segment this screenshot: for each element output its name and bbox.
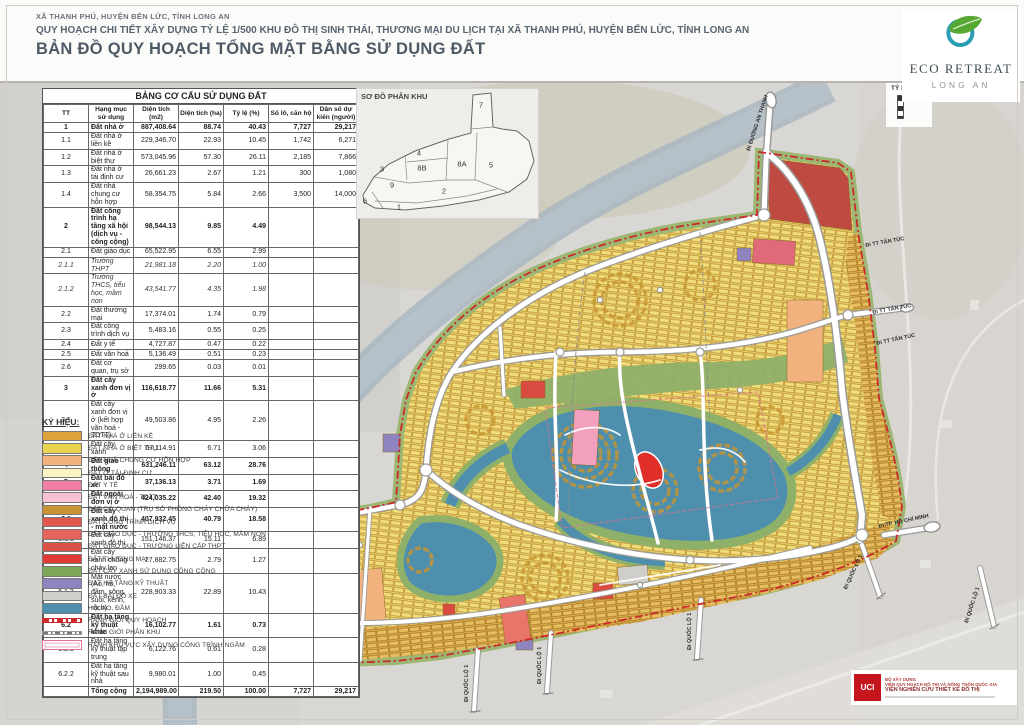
- eco-retreat-logo: ECO RETREAT LONG AN: [902, 10, 1020, 102]
- legend-swatch: [42, 542, 82, 553]
- table-row: 2.1.1Trường THPT21,981.182.201.00: [44, 257, 359, 274]
- publisher-text: BỘ XÂY DỰNG VIỆN QUY HOẠCH ĐÔ THỊ VÀ NÔN…: [885, 677, 997, 698]
- legend-label: ĐẤT THƯƠNG MẠI: [88, 556, 148, 563]
- table-cell: [314, 247, 359, 257]
- legend-item: ĐẤT THƯƠNG MẠI: [42, 553, 272, 565]
- legend-label: ĐẤT CÔNG TRÌNH DỊCH VỤ: [88, 519, 176, 526]
- subzone-number: 2: [442, 187, 446, 196]
- table-cell: Đất cơ quan, trụ sở: [89, 360, 134, 377]
- table-cell: [269, 532, 314, 549]
- service-block-4: [443, 604, 455, 615]
- logo-name: ECO RETREAT: [902, 61, 1020, 77]
- table-cell: 0.55: [179, 323, 224, 340]
- subzone-number: 1: [397, 203, 401, 212]
- table-cell: 9.85: [179, 207, 224, 247]
- legend-label: ĐẤT BÃI ĐỖ XE: [88, 593, 137, 600]
- legend-item: ĐẤT NHÀ Ở LIỀN KỀ: [42, 430, 272, 442]
- table-cell: Đất giáo dục: [89, 247, 134, 257]
- service-block-2: [521, 381, 545, 398]
- land-use-table-title: BẢNG CƠ CẤU SỬ DỤNG ĐẤT: [43, 89, 359, 104]
- legend-item: ĐẤT Y TẾ: [42, 479, 272, 491]
- legend-label: HỒ, AO, ĐẦM: [88, 605, 130, 612]
- legend-swatch: [42, 443, 82, 454]
- table-cell: 887,408.64: [134, 123, 179, 133]
- table-cell: 2.3: [44, 323, 89, 340]
- table-column-header: Tỷ lệ (%): [224, 105, 269, 123]
- culture-block: [572, 409, 600, 465]
- table-cell: 88.74: [179, 123, 224, 133]
- subzone-number: 4: [417, 149, 421, 158]
- table-cell: 29,217: [314, 687, 359, 697]
- table-cell: 2.2: [44, 306, 89, 323]
- table-cell: [269, 207, 314, 247]
- school-block: [752, 239, 796, 266]
- table-cell: 40.43: [224, 123, 269, 133]
- subzone-inset: SƠ ĐỒ PHÂN KHU 12345678A8B9: [356, 88, 539, 219]
- header-divider: [0, 81, 1024, 83]
- table-cell: 11.66: [179, 376, 224, 400]
- table-cell: 7,727: [269, 123, 314, 133]
- table-cell: [269, 257, 314, 274]
- table-cell: 3,500: [269, 183, 314, 207]
- legend-swatch: [42, 431, 82, 442]
- table-cell: 1.2: [44, 149, 89, 166]
- table-cell: 21,981.18: [134, 257, 179, 274]
- table-row: 2.2Đất thương mại17,374.011.740.79: [44, 306, 359, 323]
- table-cell: 4.49: [224, 207, 269, 247]
- mixed-apartment-block-east: [787, 300, 823, 382]
- table-cell: 5,483.16: [134, 323, 179, 340]
- legend-swatch-boundary: [42, 618, 82, 623]
- table-cell: 98,544.13: [134, 207, 179, 247]
- table-column-header: Dân số dự kiến (người): [314, 105, 359, 123]
- table-column-header: Diện tích (ha): [179, 105, 224, 123]
- table-column-header: TT: [44, 105, 89, 123]
- table-cell: 1.74: [179, 306, 224, 323]
- table-row: 2.1Đất giáo dục65,522.956.552.99: [44, 247, 359, 257]
- legend-swatch: [42, 480, 82, 491]
- table-cell: [314, 638, 359, 662]
- legend-swatch-underground: [42, 640, 82, 651]
- table-row: 1.3Đất nhà ở tái định cư26,661.232.671.2…: [44, 166, 359, 183]
- table-cell: 2.1.2: [44, 274, 89, 306]
- table-row: 2.4Đất y tế4,727.870.470.22: [44, 340, 359, 350]
- utility-block-1: [737, 248, 751, 261]
- table-cell: 1: [44, 123, 89, 133]
- publisher-block: UCI BỘ XÂY DỰNG VIỆN QUY HOẠCH ĐÔ THỊ VÀ…: [850, 669, 1018, 706]
- table-cell: 0.51: [179, 350, 224, 360]
- leaf-logo-icon: [938, 12, 984, 54]
- table-cell: 1.3: [44, 166, 89, 183]
- subzone-number: 8B: [417, 164, 426, 173]
- table-cell: [314, 306, 359, 323]
- table-cell: 43,541.77: [134, 274, 179, 306]
- subzone-inset-sketch: [357, 89, 538, 218]
- project-title: QUY HOẠCH CHI TIẾT XÂY DỰNG TỶ LỆ 1/500 …: [36, 25, 749, 36]
- table-row: 6.2.2Đất hạ tầng kỹ thuật sau nhà9,980.0…: [44, 662, 359, 686]
- table-cell: 2.6: [44, 360, 89, 377]
- map-title: BẢN ĐỒ QUY HOẠCH TỔNG MẶT BẰNG SỬ DỤNG Đ…: [36, 40, 749, 59]
- table-row: Tổng cộng2,194,989.00219.50100.007,72729…: [44, 687, 359, 697]
- table-cell: 0.23: [224, 350, 269, 360]
- table-cell: 57.30: [179, 149, 224, 166]
- legend-item: RANH GIỚI QUY HOẠCH: [42, 614, 272, 626]
- table-cell: [269, 401, 314, 441]
- table-cell: [314, 350, 359, 360]
- legend-label: ĐẤT NHÀ Ở BIỆT THỰ: [88, 445, 159, 452]
- table-cell: [269, 441, 314, 458]
- table-cell: [269, 662, 314, 686]
- legend-label: ĐẤT GIÁO DỤC - TRƯỜNG LIÊN CẤP THPT: [88, 543, 225, 550]
- table-cell: 17,374.01: [134, 306, 179, 323]
- table-cell: [269, 613, 314, 637]
- legend-swatch-subzone: [42, 631, 82, 635]
- table-cell: 7,727: [269, 687, 314, 697]
- table-cell: [269, 474, 314, 491]
- table-row: 1.2Đất nhà ở biệt thự573,045.9657.3026.1…: [44, 149, 359, 166]
- table-cell: [269, 491, 314, 508]
- legend-swatch: [42, 566, 82, 577]
- table-column-header: Số lô, căn hộ: [269, 105, 314, 123]
- table-cell: Trường THPT: [89, 257, 134, 274]
- subzone-number: 6: [363, 197, 367, 206]
- table-cell: 26,661.23: [134, 166, 179, 183]
- table-cell: Đất nhà ở biệt thự: [89, 149, 134, 166]
- legend-swatch: [42, 492, 82, 503]
- table-row: 2.1.2Trường THCS, tiểu học, mầm non43,54…: [44, 274, 359, 306]
- table-cell: [269, 340, 314, 350]
- location-line: XÃ THANH PHÚ, HUYỆN BẾN LỨC, TỈNH LONG A…: [36, 12, 749, 21]
- table-cell: 2.67: [179, 166, 224, 183]
- table-row: 1Đất nhà ở887,408.6488.7440.437,72729,21…: [44, 123, 359, 133]
- table-cell: [314, 507, 359, 531]
- table-cell: 5.84: [179, 183, 224, 207]
- table-cell: 1,742: [269, 133, 314, 150]
- table-cell: [314, 274, 359, 306]
- table-cell: [314, 441, 359, 458]
- table-row: 2.6Đất cơ quan, trụ sở299.650.030.01: [44, 360, 359, 377]
- table-cell: 1.00: [179, 662, 224, 686]
- legend-item: ĐẤT VĂN HOÁ - TDTT: [42, 491, 272, 503]
- land-use-table-header: TTHạng mục sử dụngDiện tích (m2)Diện tíc…: [44, 105, 359, 123]
- table-column-header: Hạng mục sử dụng: [89, 105, 134, 123]
- table-cell: [269, 507, 314, 531]
- table-cell: 2.99: [224, 247, 269, 257]
- table-row: 2.5Đất văn hoá5,136.490.510.23: [44, 350, 359, 360]
- subzone-number: 9: [390, 181, 394, 190]
- legend-swatch: [42, 603, 82, 614]
- legend-swatch: [42, 505, 82, 516]
- table-row: 3Đất cây xanh đơn vị ở116,618.7711.665.3…: [44, 376, 359, 400]
- table-cell: [44, 687, 89, 697]
- table-cell: [314, 323, 359, 340]
- table-cell: 2,194,989.00: [134, 687, 179, 697]
- table-cell: 2,185: [269, 149, 314, 166]
- table-row: 1.1Đất nhà ở liền kề229,346.7022.9310.45…: [44, 133, 359, 150]
- legend-swatch: [42, 517, 82, 528]
- table-cell: 10.45: [224, 133, 269, 150]
- table-cell: Đất nhà ở: [89, 123, 134, 133]
- table-row: 2Đất công trình hạ tầng xã hội (dịch vụ …: [44, 207, 359, 247]
- legend-item: ĐẤT CƠ QUAN (TRỤ SỞ PHÒNG CHÁY CHỮA CHÁY…: [42, 504, 272, 516]
- table-cell: Đất văn hoá: [89, 350, 134, 360]
- table-cell: [314, 474, 359, 491]
- table-cell: 2.5: [44, 350, 89, 360]
- table-cell: 4,727.87: [134, 340, 179, 350]
- legend-item: ĐẤT Ở TÁI ĐỊNH CƯ: [42, 467, 272, 479]
- table-cell: 1.1: [44, 133, 89, 150]
- table-cell: [269, 376, 314, 400]
- table-cell: Tổng cộng: [89, 687, 134, 697]
- table-cell: [269, 323, 314, 340]
- table-cell: Trường THCS, tiểu học, mầm non: [89, 274, 134, 306]
- table-cell: 116,618.77: [134, 376, 179, 400]
- table-cell: 0.03: [179, 360, 224, 377]
- subzone-number: 8A: [457, 160, 466, 169]
- legend-label: ĐẤT NHÀ Ở LIỀN KỀ: [88, 433, 153, 440]
- table-cell: [314, 207, 359, 247]
- publisher-address-rule: [885, 696, 995, 698]
- table-cell: Đất thương mại: [89, 306, 134, 323]
- table-cell: 7,866: [314, 149, 359, 166]
- legend-swatch: [42, 591, 82, 602]
- subzone-number: 5: [489, 161, 493, 170]
- table-cell: Đất hạ tầng kỹ thuật sau nhà: [89, 662, 134, 686]
- subzone-number: 7: [479, 101, 483, 110]
- legend-swatch: [42, 468, 82, 479]
- table-cell: [269, 360, 314, 377]
- table-cell: [269, 306, 314, 323]
- legend-item: RANH KHU VỰC XÂY DỰNG CÔNG TRÌNH NGẦM: [42, 639, 272, 651]
- legend-swatch: [42, 455, 82, 466]
- table-cell: 0.22: [224, 340, 269, 350]
- table-cell: 1,080: [314, 166, 359, 183]
- plan-sheet: Đi ĐT 830Đi ĐƯỜNG AN THẠNHĐi TT TÂN TÚCĐ…: [0, 0, 1024, 725]
- publisher-logo: UCI: [854, 674, 881, 701]
- table-cell: 2.20: [179, 257, 224, 274]
- table-cell: [314, 257, 359, 274]
- table-cell: 0.01: [224, 360, 269, 377]
- legend-item: ĐẤT CÔNG TRÌNH DỊCH VỤ: [42, 516, 272, 528]
- table-cell: 300: [269, 166, 314, 183]
- table-cell: 2.66: [224, 183, 269, 207]
- table-cell: 0.25: [224, 323, 269, 340]
- subzone-number: 3: [380, 165, 384, 174]
- legend-item: ĐẤT CÂY XANH SỬ DỤNG CÔNG CỘNG: [42, 565, 272, 577]
- table-cell: 6.55: [179, 247, 224, 257]
- table-cell: 26.11: [224, 149, 269, 166]
- table-cell: 3: [44, 376, 89, 400]
- table-cell: 229,346.70: [134, 133, 179, 150]
- legend-item: ĐẤT NHÀ CHUNG CƯ HỖN HỢP: [42, 455, 272, 467]
- legend-swatch: [42, 529, 82, 540]
- table-cell: [314, 573, 359, 613]
- legend-item: ĐẤT GIÁO DỤC - TRƯỜNG LIÊN CẤP THPT: [42, 541, 272, 553]
- legend-swatch: [42, 554, 82, 565]
- table-cell: [314, 491, 359, 508]
- table-cell: 1.00: [224, 257, 269, 274]
- table-cell: Đất y tế: [89, 340, 134, 350]
- table-cell: 0.79: [224, 306, 269, 323]
- table-cell: 219.50: [179, 687, 224, 697]
- table-cell: 14,000: [314, 183, 359, 207]
- legend-label: ĐẤT NHÀ CHUNG CƯ HỖN HỢP: [88, 457, 191, 464]
- table-cell: 1.4: [44, 183, 89, 207]
- legend-label: ĐẤT CƠ QUAN (TRỤ SỞ PHÒNG CHÁY CHỮA CHÁY…: [88, 506, 257, 513]
- table-cell: Đất nhà chung cư hỗn hợp: [89, 183, 134, 207]
- table-cell: 573,045.96: [134, 149, 179, 166]
- table-column-header: Diện tích (m2): [134, 105, 179, 123]
- legend-item: ĐẤT HẠ TẦNG KỸ THUẬT: [42, 578, 272, 590]
- table-cell: 29,217: [314, 123, 359, 133]
- table-cell: [269, 350, 314, 360]
- table-cell: 2.1: [44, 247, 89, 257]
- table-cell: 100.00: [224, 687, 269, 697]
- table-cell: [269, 457, 314, 474]
- table-cell: 0.45: [224, 662, 269, 686]
- table-cell: Đất công trình dịch vụ: [89, 323, 134, 340]
- table-cell: [269, 638, 314, 662]
- legend-title: KÝ HIỆU:: [42, 417, 272, 427]
- table-cell: [269, 549, 314, 573]
- table-cell: 1.98: [224, 274, 269, 306]
- table-cell: 5.31: [224, 376, 269, 400]
- table-cell: Đất cây xanh đơn vị ở: [89, 376, 134, 400]
- table-cell: [269, 274, 314, 306]
- table-cell: [314, 662, 359, 686]
- legend-label: ĐẤT VĂN HOÁ - TDTT: [88, 494, 157, 501]
- table-cell: 58,354.75: [134, 183, 179, 207]
- legend-label: ĐẤT HẠ TẦNG KỸ THUẬT: [88, 580, 168, 587]
- table-cell: 9,980.01: [134, 662, 179, 686]
- table-cell: [314, 549, 359, 573]
- table-cell: Đất công trình hạ tầng xã hội (dịch vụ -…: [89, 207, 134, 247]
- table-cell: [314, 457, 359, 474]
- table-cell: [314, 340, 359, 350]
- legend-label: ĐẤT CÂY XANH SỬ DỤNG CÔNG CỘNG: [88, 568, 216, 575]
- table-cell: [314, 613, 359, 637]
- legend-item: HỒ, AO, ĐẦM: [42, 602, 272, 614]
- table-row: 2.3Đất công trình dịch vụ5,483.160.550.2…: [44, 323, 359, 340]
- table-cell: [314, 532, 359, 549]
- legend: KÝ HIỆU: ĐẤT NHÀ Ở LIỀN KỀĐẤT NHÀ Ở BIỆT…: [42, 417, 272, 651]
- table-cell: 6,271: [314, 133, 359, 150]
- legend-item: RANH GIỚI PHÂN KHU: [42, 627, 272, 639]
- table-cell: 2.4: [44, 340, 89, 350]
- legend-label: ĐẤT GIÁO DỤC - TRƯỜNG THCS, TIỂU HỌC, MẦ…: [88, 531, 266, 538]
- table-cell: 5,136.49: [134, 350, 179, 360]
- logo-subtitle: LONG AN: [902, 80, 1020, 90]
- table-cell: 6.2.2: [44, 662, 89, 686]
- legend-item: ĐẤT BÃI ĐỖ XE: [42, 590, 272, 602]
- table-cell: [314, 376, 359, 400]
- legend-label: RANH GIỚI PHÂN KHU: [88, 629, 161, 636]
- table-cell: 0.47: [179, 340, 224, 350]
- table-cell: 4.35: [179, 274, 224, 306]
- utility-block-2: [383, 434, 400, 452]
- table-cell: [269, 247, 314, 257]
- table-row: 1.4Đất nhà chung cư hỗn hợp58,354.755.84…: [44, 183, 359, 207]
- legend-item: ĐẤT GIÁO DỤC - TRƯỜNG THCS, TIỂU HỌC, MẦ…: [42, 528, 272, 540]
- subzone-inset-title: SƠ ĐỒ PHÂN KHU: [361, 92, 427, 101]
- legend-label: RANH GIỚI QUY HOẠCH: [88, 617, 167, 624]
- table-cell: 2: [44, 207, 89, 247]
- legend-items: ĐẤT NHÀ Ở LIỀN KỀĐẤT NHÀ Ở BIỆT THỰĐẤT N…: [42, 430, 272, 651]
- table-cell: 22.93: [179, 133, 224, 150]
- table-cell: Đất nhà ở liền kề: [89, 133, 134, 150]
- table-cell: [269, 573, 314, 613]
- legend-label: RANH KHU VỰC XÂY DỰNG CÔNG TRÌNH NGẦM: [88, 642, 245, 649]
- table-cell: Đất nhà ở tái định cư: [89, 166, 134, 183]
- table-cell: 1.21: [224, 166, 269, 183]
- commercial-block-north: [765, 158, 852, 230]
- table-cell: 2.1.1: [44, 257, 89, 274]
- legend-swatch: [42, 578, 82, 589]
- publisher-line3: VIỆN NGHIÊN CỨU THIẾT KẾ ĐÔ THỊ: [885, 687, 997, 694]
- table-cell: [314, 401, 359, 441]
- sheet-header: XÃ THANH PHÚ, HUYỆN BẾN LỨC, TỈNH LONG A…: [36, 12, 749, 59]
- table-cell: [314, 360, 359, 377]
- legend-label: ĐẤT Y TẾ: [88, 482, 118, 489]
- legend-item: ĐẤT NHÀ Ở BIỆT THỰ: [42, 442, 272, 454]
- table-cell: 299.65: [134, 360, 179, 377]
- legend-label: ĐẤT Ở TÁI ĐỊNH CƯ: [88, 470, 152, 477]
- table-cell: 65,522.95: [134, 247, 179, 257]
